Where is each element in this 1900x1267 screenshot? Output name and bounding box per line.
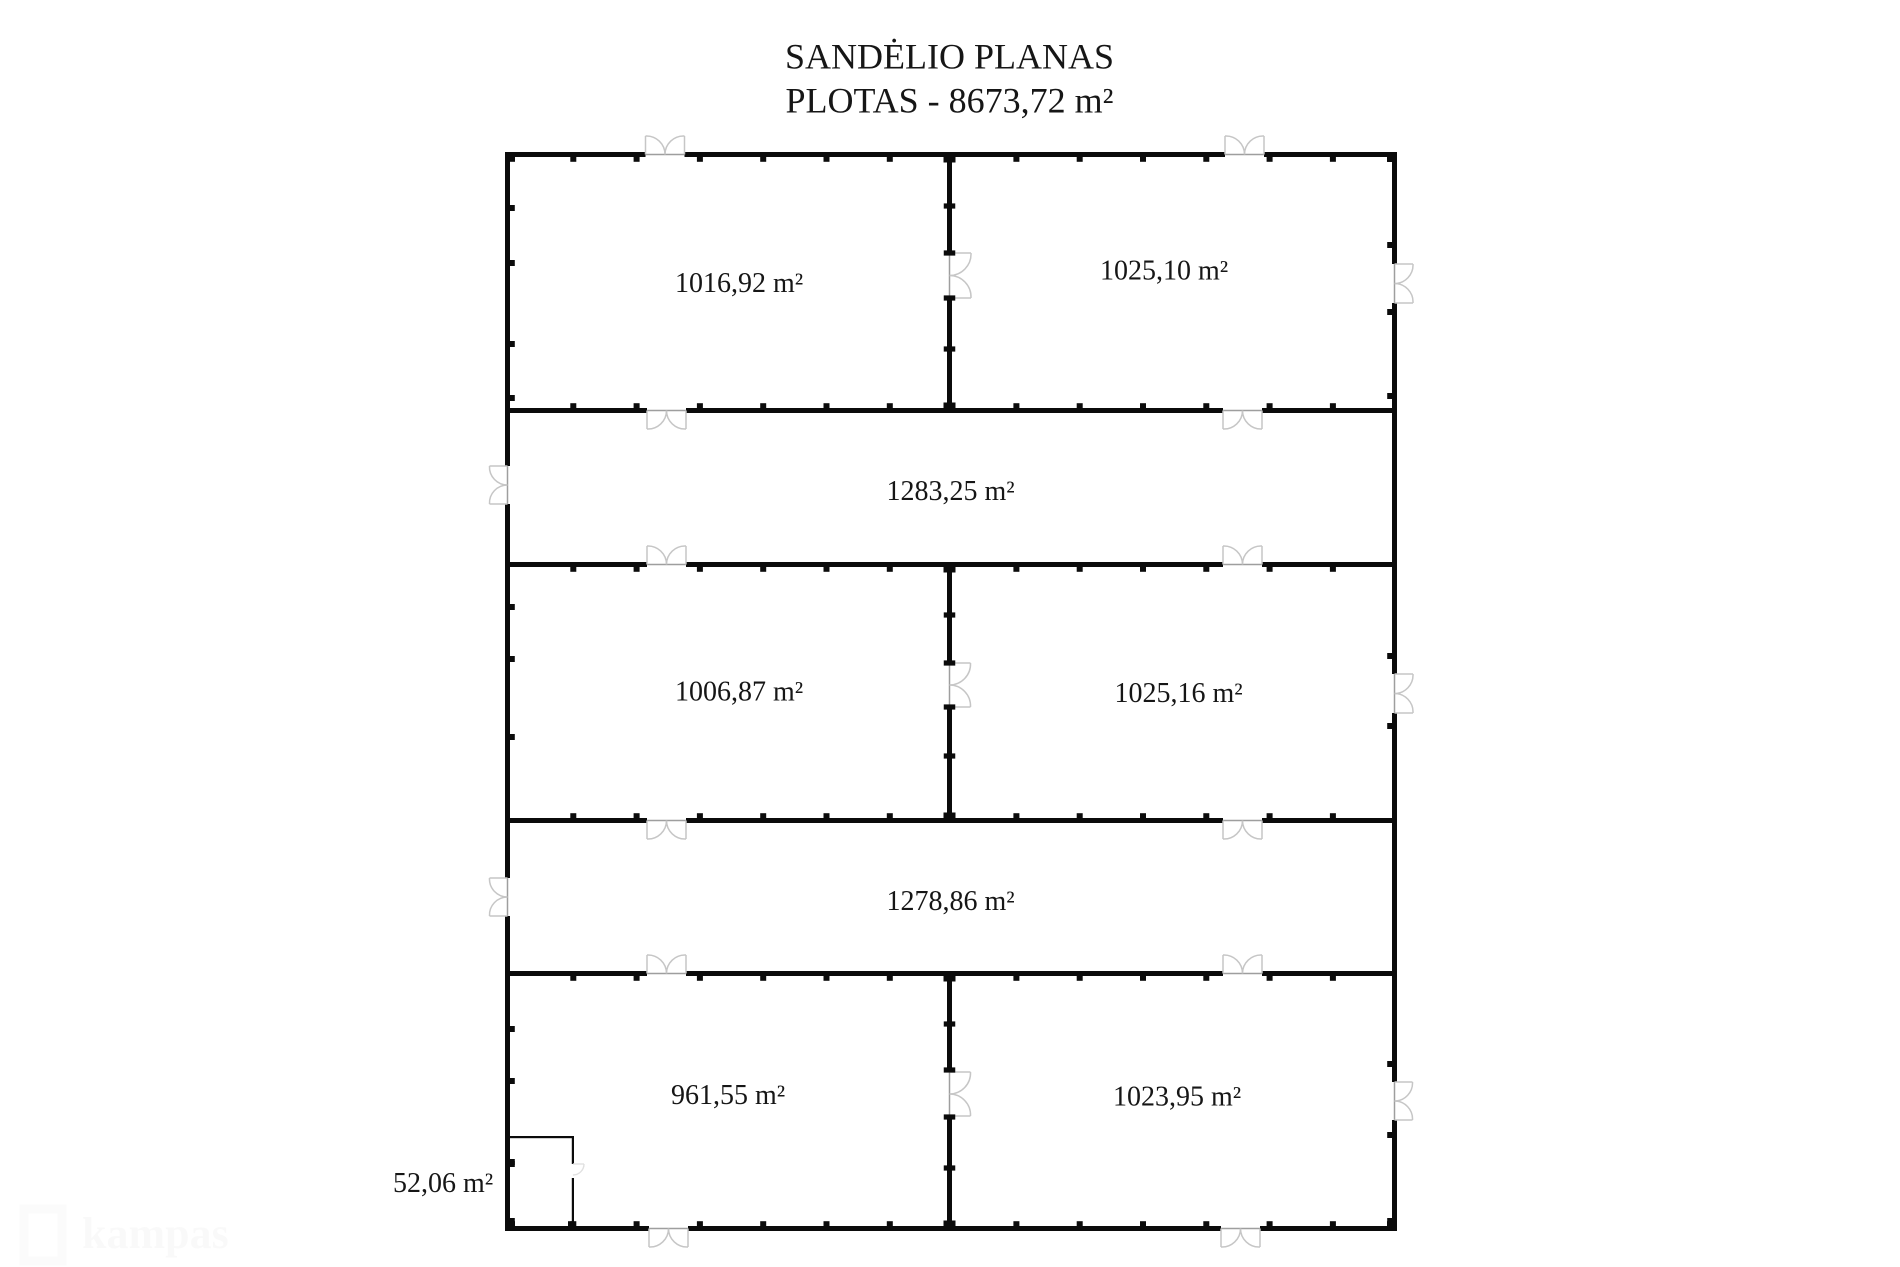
svg-text:52,06 m²: 52,06 m²	[393, 1168, 493, 1199]
svg-text:1283,25 m²: 1283,25 m²	[887, 476, 1015, 507]
svg-text:1016,92 m²: 1016,92 m²	[675, 268, 803, 299]
svg-text:1023,95 m²: 1023,95 m²	[1113, 1082, 1241, 1113]
svg-text:PLOTAS - 8673,72 m²: PLOTAS - 8673,72 m²	[786, 80, 1114, 120]
svg-text:1025,10 m²: 1025,10 m²	[1100, 256, 1228, 287]
svg-text:961,55 m²: 961,55 m²	[671, 1080, 785, 1111]
svg-text:kampas: kampas	[82, 1209, 229, 1258]
svg-text:1025,16 m²: 1025,16 m²	[1115, 678, 1243, 709]
svg-text:SANDĖLIO PLANAS: SANDĖLIO PLANAS	[785, 36, 1114, 76]
svg-text:1006,87 m²: 1006,87 m²	[675, 677, 803, 708]
svg-text:1278,86 m²: 1278,86 m²	[887, 886, 1015, 917]
